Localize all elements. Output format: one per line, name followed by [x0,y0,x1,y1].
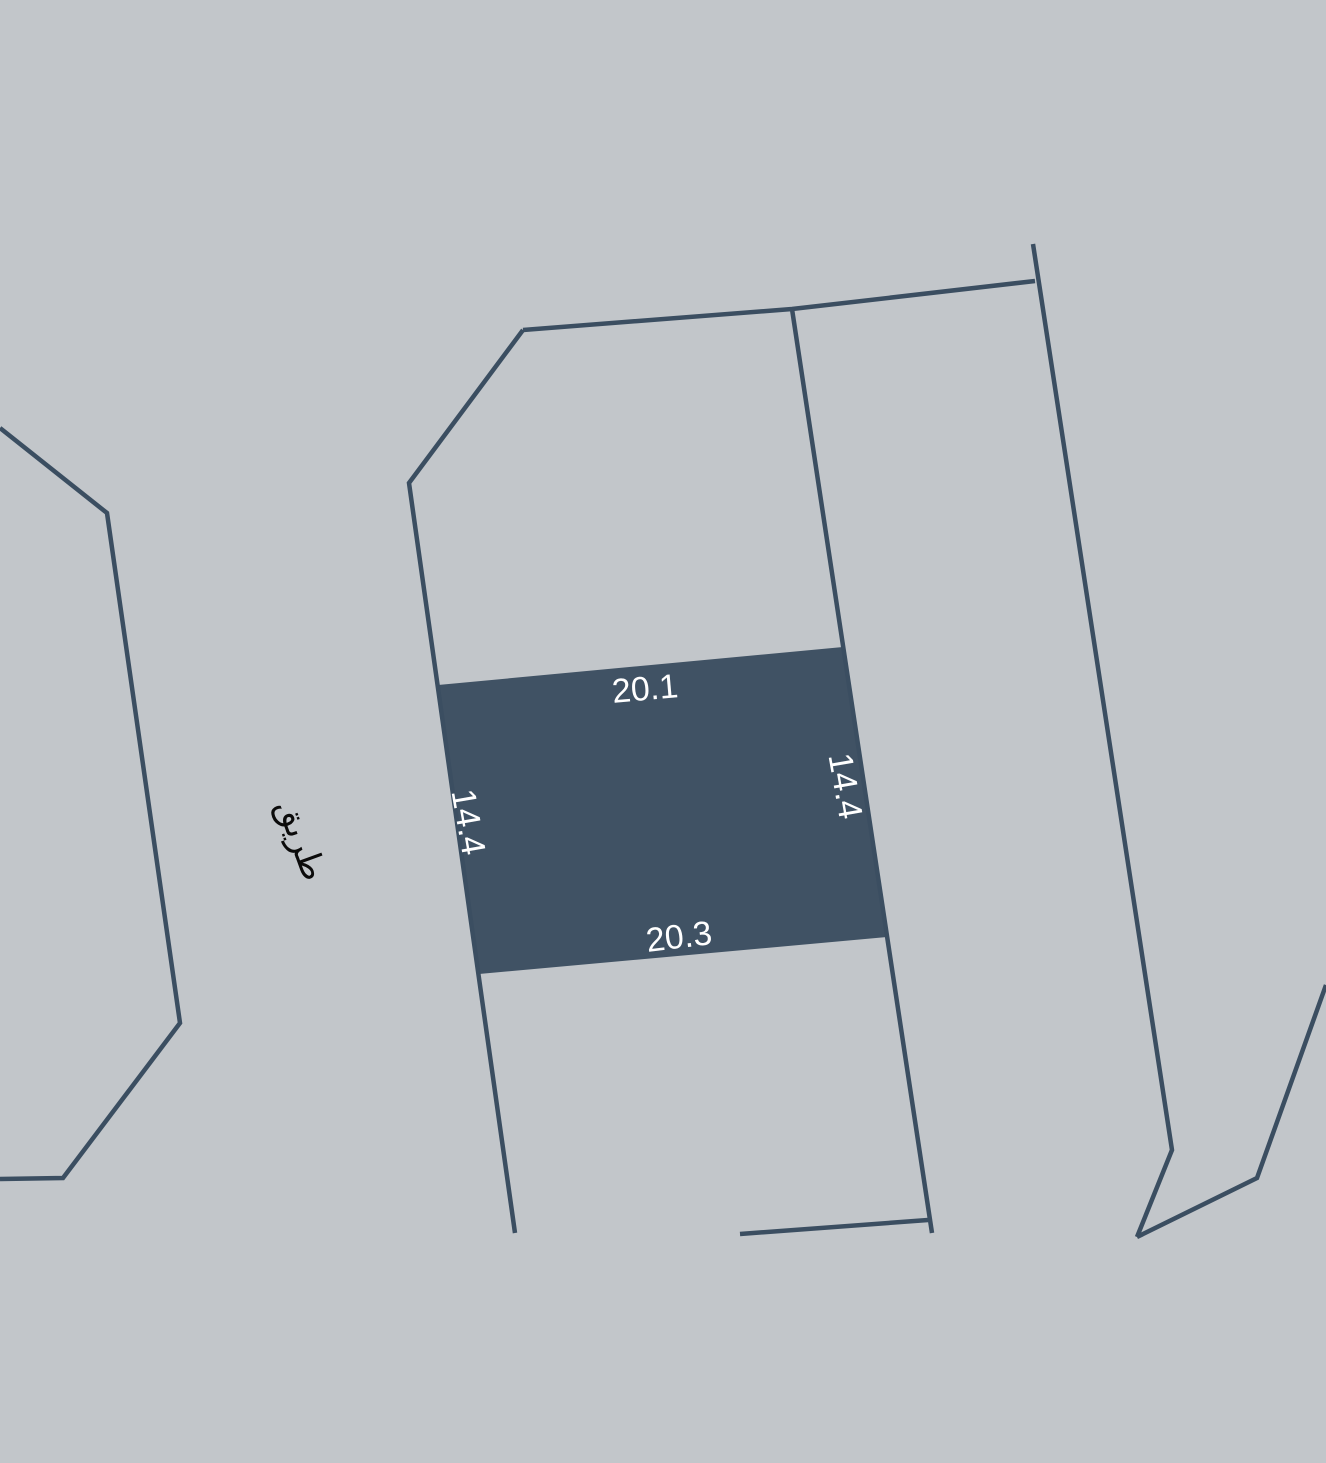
map-stage: 20.1 20.3 14.4 14.4 طريق [0,0,1326,1463]
dimension-label-top: 20.1 [610,667,679,711]
dimension-label-bottom: 20.3 [644,914,714,960]
map-canvas[interactable]: 20.1 20.3 14.4 14.4 طريق [0,0,1326,1463]
